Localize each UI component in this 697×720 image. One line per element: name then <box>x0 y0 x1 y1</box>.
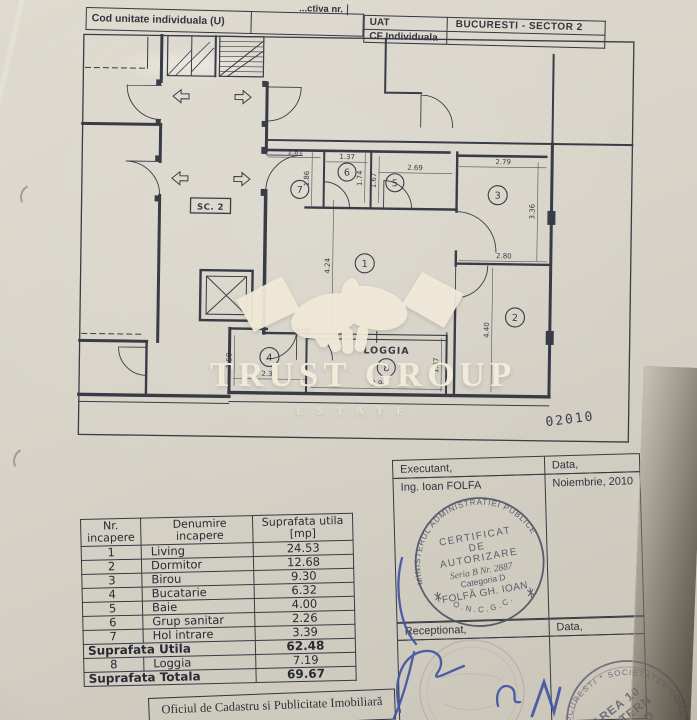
plan-code-stamp: 02010 <box>545 409 596 430</box>
scanned-cadastral-document: ...ctiva nr. Cod unitate individuala (U)… <box>0 0 697 720</box>
agency-watermark: TRUST GROUP ESTATE <box>210 266 490 418</box>
room-number: 2 <box>512 313 518 324</box>
total-label: Suprafata Totala <box>84 669 256 687</box>
hole-punch-mark <box>10 445 43 478</box>
dim-text: 2.80 <box>496 252 512 260</box>
dim-text: 1.74 <box>356 170 364 186</box>
room-number: 3 <box>495 191 501 202</box>
door-jambs <box>155 79 269 203</box>
row-nr: 5 <box>82 601 142 616</box>
dim-text: 1.81 <box>287 148 303 156</box>
dim-text: 1.37 <box>339 153 355 161</box>
row-nr: 1 <box>81 545 141 560</box>
row-nr: 6 <box>83 615 143 630</box>
red-round-stamp <box>428 0 578 38</box>
date-label: Data, <box>544 455 640 475</box>
room-number: 5 <box>392 178 398 189</box>
door-arcs-hall <box>126 85 304 197</box>
watermark-title: TRUST GROUP <box>210 355 490 395</box>
staircase <box>167 36 264 77</box>
area-table-block: Nr.incapere Denumireincapere Suprafata u… <box>80 513 357 687</box>
header-suprafata: Suprafata utila[mp] <box>252 513 353 542</box>
staircase-label: SC. 2 <box>197 202 224 212</box>
paper-fold-highlight <box>0 0 26 136</box>
neighbor-unit-top <box>266 37 633 145</box>
paper-edge-shadow <box>630 366 697 720</box>
dim-text: 2.79 <box>495 158 511 166</box>
direction-arrows <box>172 90 251 186</box>
total-value: 69.67 <box>256 666 356 682</box>
cadastru-office-box: Oficiul de Cadastru si Publicitate Imobi… <box>148 689 396 720</box>
room-number: 6 <box>344 168 350 179</box>
hole-punch-mark <box>17 181 50 214</box>
row-nr: 4 <box>82 587 142 602</box>
watermark-subtitle: ESTATE <box>210 403 490 418</box>
row-nr: 3 <box>82 573 142 588</box>
room-number: 7 <box>297 185 303 196</box>
header-nr: Nr.incapere <box>81 518 142 546</box>
room-areas-table: Nr.incapere Denumireincapere Suprafata u… <box>80 513 357 687</box>
handwritten-signatures <box>386 540 586 720</box>
dim-text: 2.69 <box>407 164 423 172</box>
dim-text: 1.67 <box>370 173 378 189</box>
row-nr: 2 <box>81 559 141 574</box>
header-denumire: Denumireincapere <box>140 516 253 546</box>
handshake-icon <box>230 266 470 358</box>
dim-text: 3.36 <box>528 203 536 219</box>
